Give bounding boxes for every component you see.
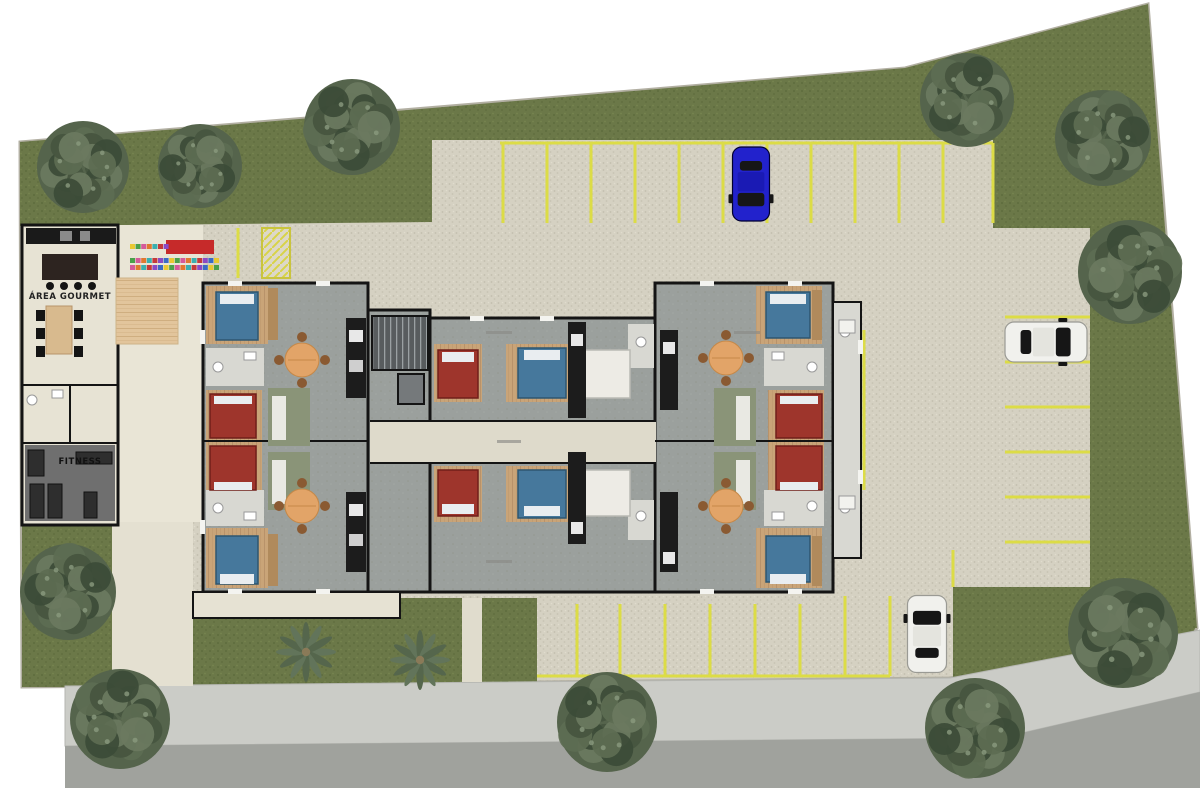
elevator [398, 374, 424, 404]
tree-5 [1055, 90, 1151, 186]
grass-top-strip [432, 4, 1158, 140]
walkway-entry [462, 598, 482, 682]
tree-10 [70, 669, 170, 769]
tree-8 [925, 678, 1025, 779]
walkway-left [112, 522, 193, 686]
patio-south [193, 592, 400, 618]
tree-9 [557, 672, 657, 772]
car-white-right [1005, 318, 1087, 366]
gourmet-dining-table [46, 306, 72, 354]
site-plan-svg: ÁREA GOURMETFITNESS [0, 0, 1200, 788]
playground-tiles-a [130, 244, 169, 249]
tree-2 [158, 124, 242, 208]
gourmet-bar-table [42, 254, 98, 280]
site-plan-canvas: ÁREA GOURMETFITNESS [0, 0, 1200, 788]
wood-deck [116, 278, 178, 344]
tree-7 [1068, 578, 1178, 688]
stairwell [372, 316, 428, 370]
tree-4 [920, 53, 1014, 147]
tree-1 [37, 121, 129, 213]
playground-mat-red [166, 240, 214, 254]
label-area-gourmet: ÁREA GOURMET [29, 290, 111, 302]
building-service-strip [833, 302, 861, 558]
tree-6 [1078, 220, 1182, 324]
car-white-bottom [904, 596, 951, 673]
car-blue [729, 147, 774, 221]
label-fitness: FITNESS [58, 457, 101, 467]
hatched-service-box [262, 228, 290, 278]
